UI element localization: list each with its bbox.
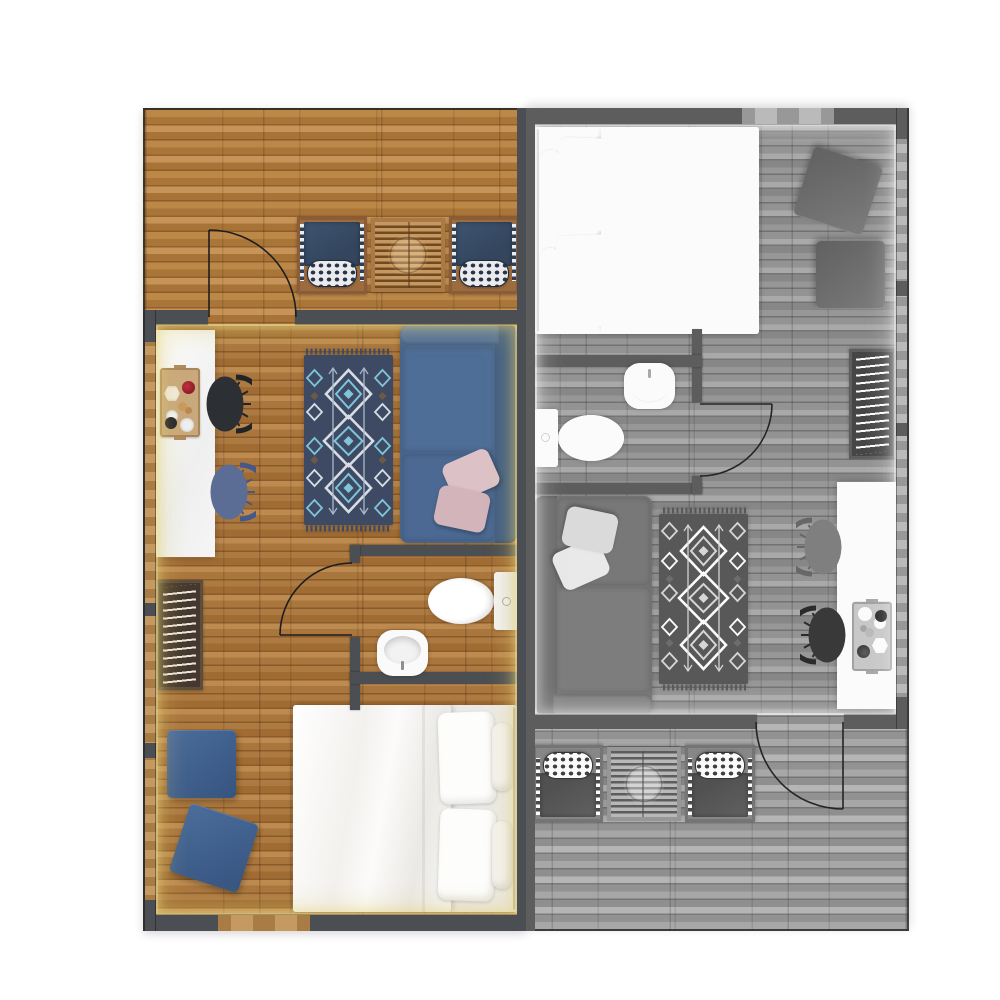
floor-plan-canvas: [0, 0, 1000, 1000]
doors-overlay: [143, 108, 526, 931]
unit-a: [143, 108, 526, 931]
unit-b: [526, 108, 909, 931]
bathroom-door: [280, 563, 352, 635]
doors-overlay: [526, 108, 909, 931]
bathroom-door: [700, 404, 772, 476]
terrace-door: [209, 230, 296, 317]
terrace-door: [756, 722, 843, 809]
